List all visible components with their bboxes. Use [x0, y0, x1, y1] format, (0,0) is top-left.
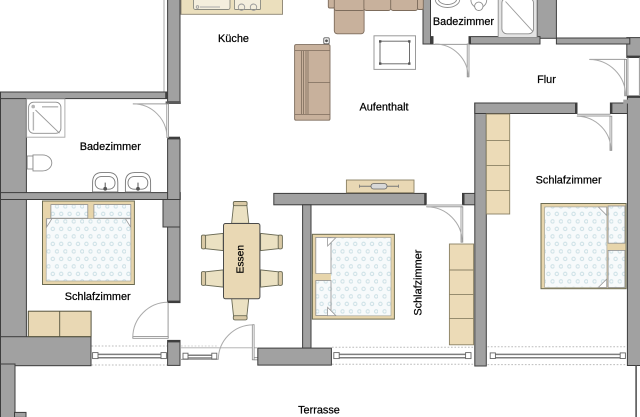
svg-text:Terrasse: Terrasse [298, 405, 340, 417]
svg-text:Schlafzimmer: Schlafzimmer [65, 291, 131, 303]
svg-text:Badezimmer: Badezimmer [80, 141, 142, 153]
svg-text:Badezimmer: Badezimmer [433, 16, 495, 28]
svg-text:Essen: Essen [235, 245, 246, 274]
svg-text:Schlafzimmer: Schlafzimmer [536, 175, 602, 187]
svg-text:Aufenthalt: Aufenthalt [359, 102, 408, 114]
svg-text:Flur: Flur [537, 74, 556, 86]
svg-text:Schlafzimmer: Schlafzimmer [412, 249, 424, 315]
svg-text:Küche: Küche [218, 33, 249, 45]
